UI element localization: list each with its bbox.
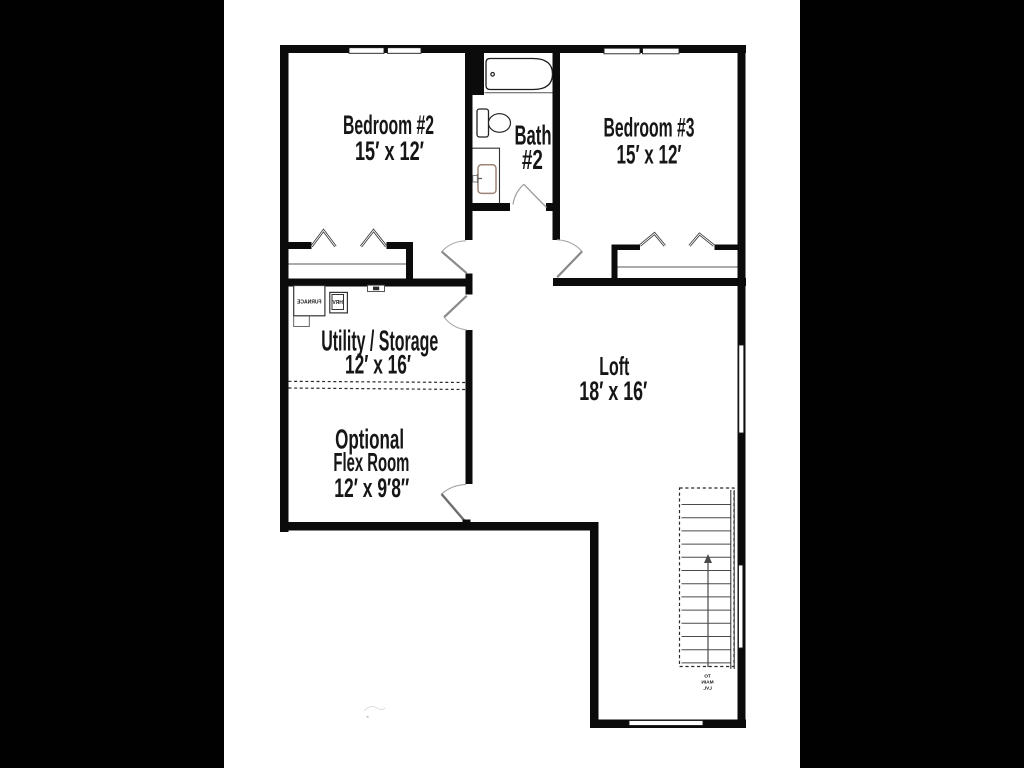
svg-text:12′ x 9′8″: 12′ x 9′8″ xyxy=(334,473,409,503)
svg-text:18′ x 16′: 18′ x 16′ xyxy=(579,376,647,406)
svg-text:15′ x 12′: 15′ x 12′ xyxy=(355,136,424,166)
svg-text:12′ x 16′: 12′ x 16′ xyxy=(345,350,411,380)
svg-text:MAIN: MAIN xyxy=(701,680,714,686)
svg-text:#2: #2 xyxy=(522,144,543,175)
svg-text:15′ x 12′: 15′ x 12′ xyxy=(617,140,682,170)
svg-text:TO: TO xyxy=(704,674,711,680)
svg-text:HRV: HRV xyxy=(332,300,343,306)
svg-text:LVL: LVL xyxy=(703,686,712,692)
svg-text:FURNACE: FURNACE xyxy=(296,300,321,306)
svg-text:Bedroom #3: Bedroom #3 xyxy=(604,113,695,143)
